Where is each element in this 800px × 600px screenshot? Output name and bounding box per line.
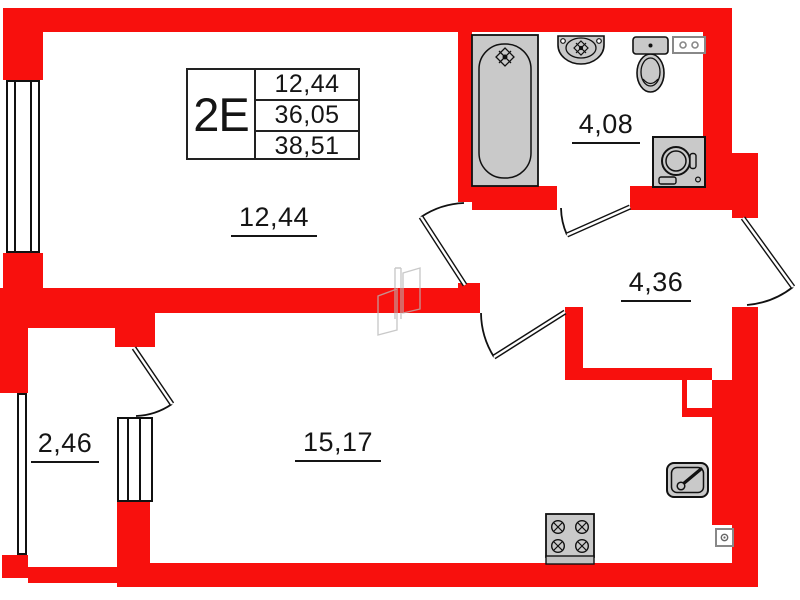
title-block: 2E 12,44 36,05 38,51 [186,68,360,160]
room-label-balcony: 2,46 [31,430,99,463]
bathtub [472,35,538,186]
window-balcony-room2 [117,417,153,502]
socket [716,529,733,546]
room2-door-arc [481,313,494,357]
room-label-hallway: 4,36 [621,269,691,302]
title-area-living: 12,44 [256,70,358,101]
title-area-total: 36,05 [256,101,358,132]
washing-machine [653,137,705,187]
title-block-areas: 12,44 36,05 38,51 [256,70,358,158]
electrical-panel [673,37,705,53]
balcony-door-arc [136,404,172,416]
entrance-door-arc [747,287,793,305]
kitchen-sink [667,463,708,497]
window-room1-left [6,80,40,253]
ghost-fixture-icon [378,268,420,335]
title-area-total-with-balcony: 38,51 [256,132,358,161]
room-label-bathroom: 4,08 [572,111,640,144]
toilet [633,37,668,92]
room1-door-arc [421,203,464,217]
room-label-kitchen-living: 15,17 [295,429,381,462]
floorplan: 2E 12,44 36,05 38,51 12,44 4,08 4,36 15,… [0,0,800,600]
basin-faucet-icon [574,41,588,55]
room-label-living: 12,44 [231,204,317,237]
unit-type-label: 2E [188,70,256,158]
balcony-glazing [17,393,27,555]
stove [546,514,594,564]
wash-basin [558,36,604,64]
bathroom-door-arc [561,208,567,235]
